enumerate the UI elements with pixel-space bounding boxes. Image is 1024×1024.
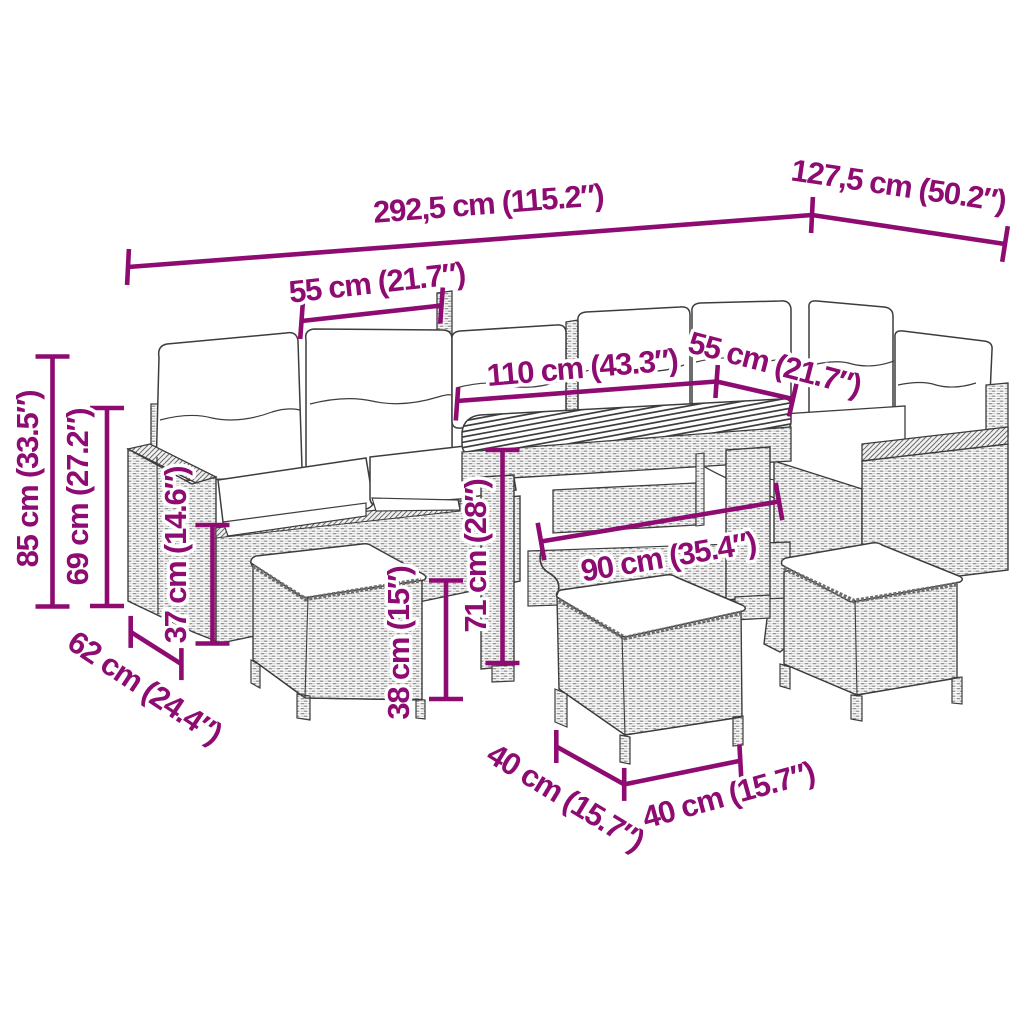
- svg-text:85 cm (33.5″): 85 cm (33.5″): [10, 391, 45, 568]
- svg-text:38 cm (15″): 38 cm (15″): [381, 566, 416, 719]
- svg-text:71 cm (28″): 71 cm (28″): [458, 479, 493, 632]
- svg-text:69 cm (27.2″): 69 cm (27.2″): [60, 409, 95, 586]
- svg-text:37 cm (14.6″): 37 cm (14.6″): [158, 467, 193, 644]
